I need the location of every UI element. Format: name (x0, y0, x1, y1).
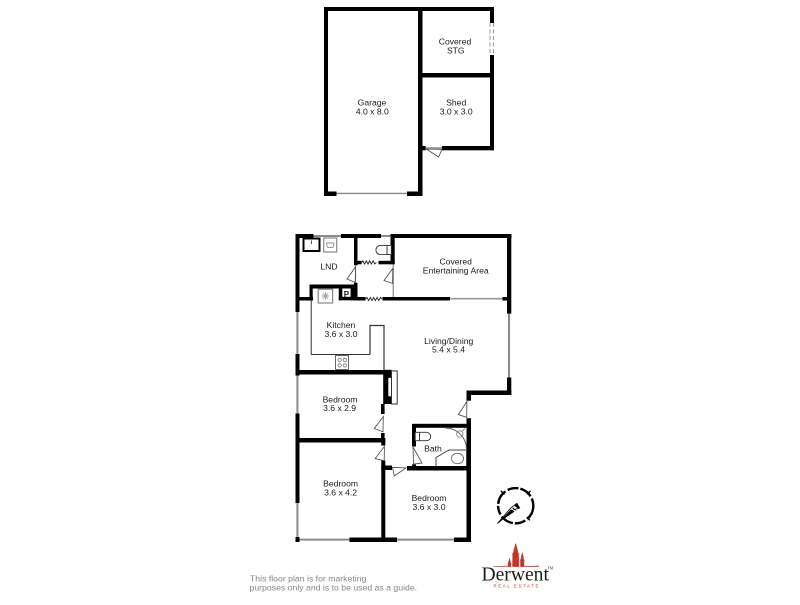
svg-text:STG: STG (447, 46, 465, 56)
svg-text:TM: TM (548, 567, 554, 571)
svg-text:4.0 x 8.0: 4.0 x 8.0 (356, 106, 389, 116)
svg-text:Entertaining Area: Entertaining Area (423, 265, 489, 275)
svg-text:P: P (344, 290, 350, 299)
svg-text:3.6 x 3.0: 3.6 x 3.0 (413, 502, 446, 512)
svg-text:3.6 x 3.0: 3.6 x 3.0 (325, 329, 358, 339)
svg-text:3.6 x 4.2: 3.6 x 4.2 (324, 487, 357, 497)
svg-text:3.6 x 2.9: 3.6 x 2.9 (323, 403, 356, 413)
svg-text:Bath: Bath (424, 444, 442, 454)
svg-text:Derwent: Derwent (481, 565, 549, 586)
svg-text:purposes only and is to be use: purposes only and is to be used as a gui… (250, 582, 418, 592)
svg-text:3.0 x 3.0: 3.0 x 3.0 (440, 106, 473, 116)
svg-text:REAL ESTATE: REAL ESTATE (494, 584, 541, 589)
svg-text:LND: LND (320, 261, 337, 271)
svg-text:5.4 x 5.4: 5.4 x 5.4 (432, 344, 465, 354)
